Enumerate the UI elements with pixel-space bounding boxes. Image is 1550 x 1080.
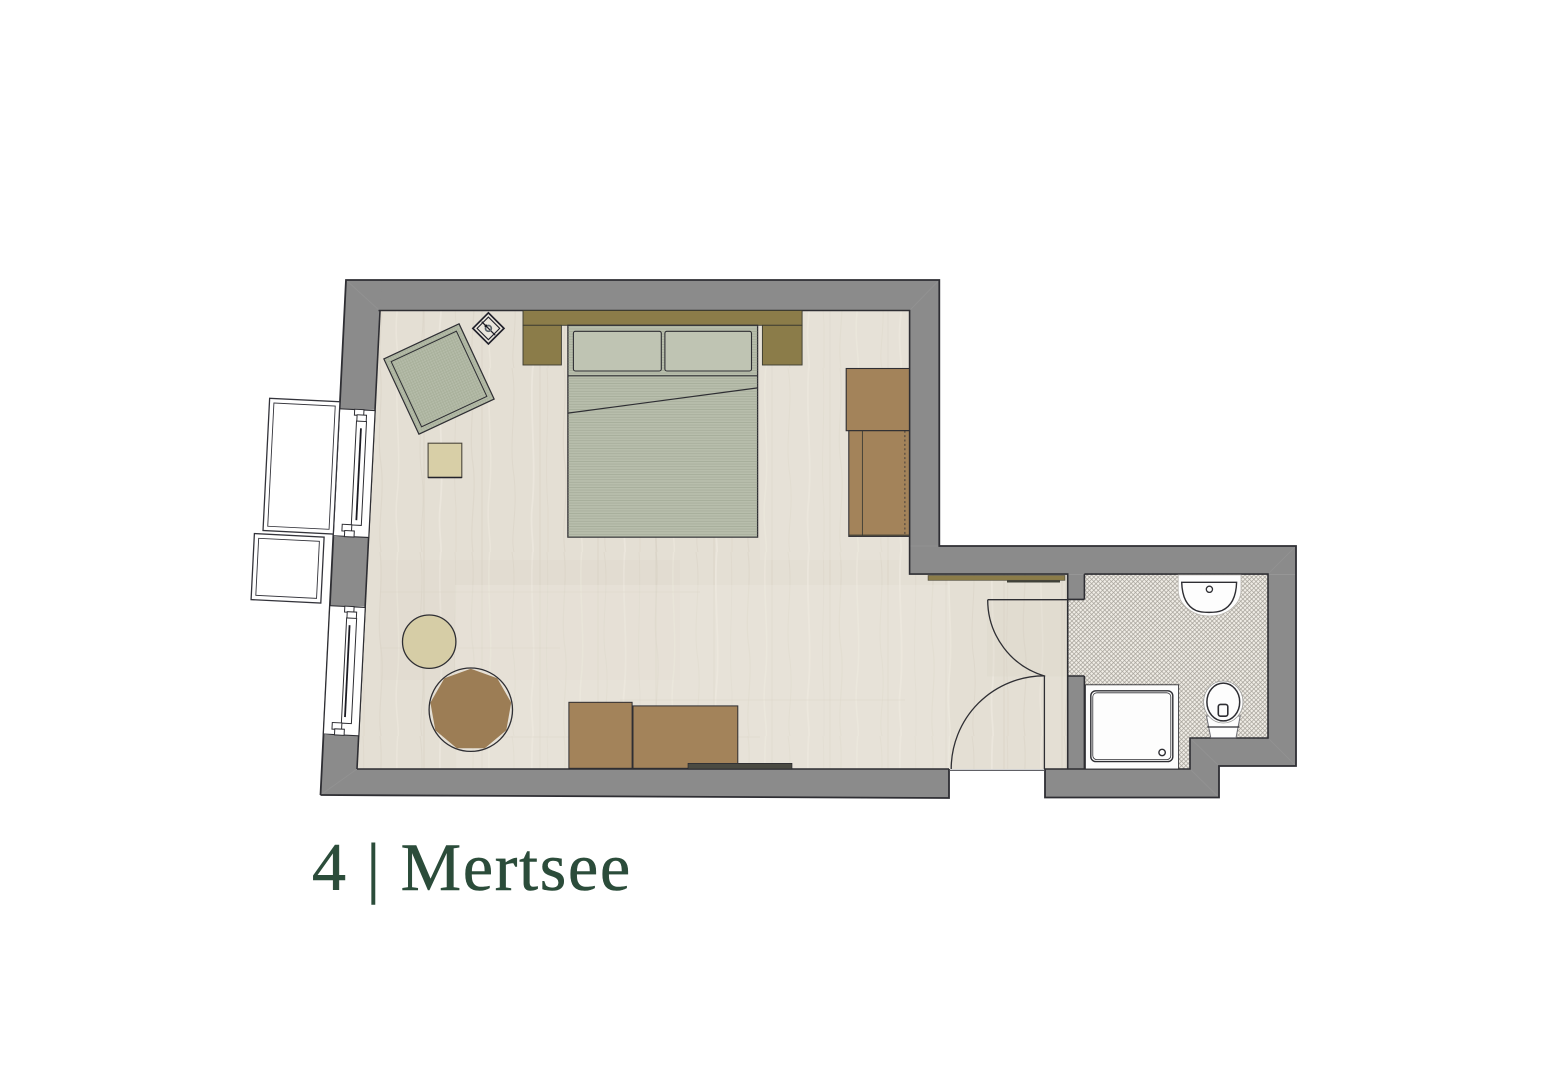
svg-text:4 | Mertsee: 4 | Mertsee [312,829,632,905]
